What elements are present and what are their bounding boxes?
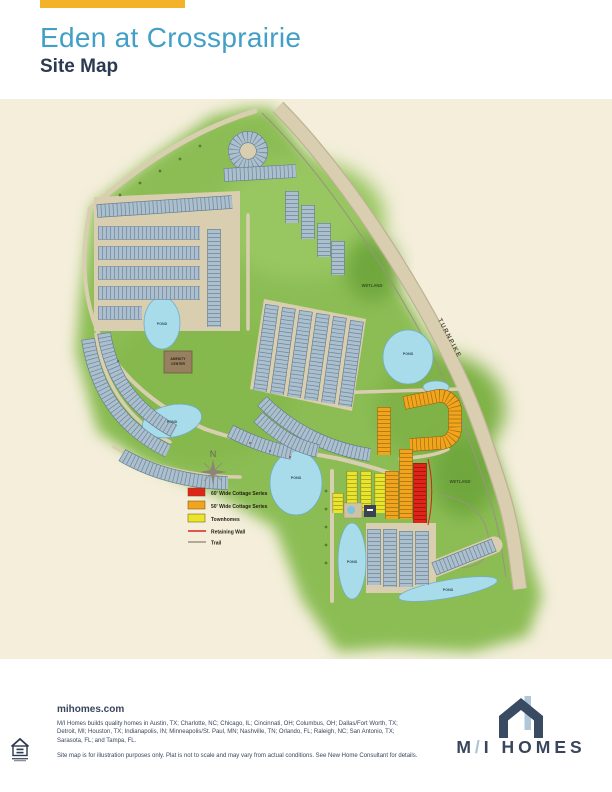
equal-housing-icon: [10, 737, 30, 763]
wetland-label: WETLAND: [362, 283, 383, 288]
logo-m: M: [456, 737, 475, 757]
mi-homes-house-icon: [494, 694, 548, 740]
pond-central: [270, 451, 322, 515]
legend-label-retaining-wall: Retaining Wall: [211, 530, 246, 536]
amenity-label-line2: CENTER: [171, 362, 185, 366]
brand-accent-bar: [40, 0, 185, 8]
site-map: AMENITY CENTER TURNPIKE: [0, 99, 612, 659]
legend-label-50-wide: 50' Wide Cottage Series: [211, 504, 268, 510]
legend-label-60-wide: 60' Wide Cottage Series: [211, 491, 268, 497]
logo-rest: I HOMES: [484, 737, 586, 757]
page-title: Eden at Crossprairie: [40, 22, 301, 54]
page-subtitle: Site Map: [40, 56, 118, 78]
site-map-illustration: AMENITY CENTER TURNPIKE: [0, 99, 612, 659]
amenity-label-line1: AMENITY: [170, 357, 186, 361]
markets-disclaimer: M/I Homes builds quality homes in Austin…: [57, 720, 409, 745]
legend-label-trail: Trail: [211, 541, 222, 547]
legend-swatch-townhomes: [188, 514, 205, 522]
pond-label: POND: [443, 588, 454, 592]
mi-homes-logo-text: M/I HOMES: [441, 737, 601, 758]
sitemap-disclaimer: Site map is for illustration purposes on…: [57, 753, 437, 759]
pond-label: POND: [167, 420, 178, 424]
legend-item-retaining-wall: Retaining Wall: [188, 530, 246, 536]
amenity-center: AMENITY CENTER: [164, 351, 192, 373]
pond-label: POND: [291, 476, 302, 480]
pond-label: POND: [347, 560, 358, 564]
legend-swatch-50-wide: [188, 501, 205, 509]
pond-turnpike: [383, 330, 433, 384]
legend-item-townhomes: Townhomes: [188, 514, 240, 523]
compass-north-label: N: [210, 449, 217, 459]
wetland-label: WETLAND: [450, 479, 471, 484]
website-url[interactable]: mihomes.com: [57, 704, 124, 715]
map-legend: 60' Wide Cottage Series 50' Wide Cottage…: [188, 488, 268, 547]
flyer-page: Eden at Crossprairie Site Map: [0, 0, 612, 792]
pool-amenity: [344, 503, 376, 518]
pond-label: POND: [157, 322, 168, 326]
logo-slash: /: [475, 737, 484, 757]
pond-label: POND: [403, 352, 414, 356]
legend-item-trail: Trail: [188, 541, 222, 547]
legend-swatch-60-wide: [188, 488, 205, 496]
legend-label-townhomes: Townhomes: [211, 517, 240, 523]
